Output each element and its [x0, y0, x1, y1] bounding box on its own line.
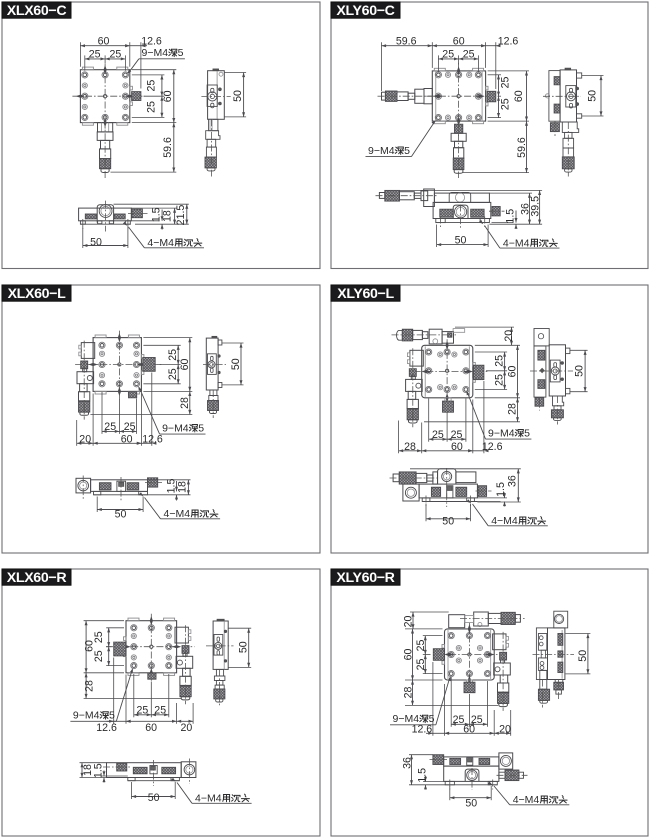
svg-text:50: 50 [148, 792, 160, 804]
svg-text:12.6: 12.6 [412, 724, 433, 736]
svg-text:XLX60−L: XLX60−L [8, 286, 67, 302]
svg-text:59.6: 59.6 [162, 137, 174, 158]
svg-text:25: 25 [167, 349, 179, 361]
svg-text:50: 50 [577, 650, 589, 662]
svg-text:25: 25 [110, 49, 122, 61]
svg-text:50: 50 [232, 90, 244, 102]
svg-text:4−M4: 4−M4 [195, 793, 222, 805]
svg-text:59.6: 59.6 [516, 137, 528, 158]
svg-text:60: 60 [162, 90, 174, 102]
svg-text:1.5: 1.5 [93, 763, 105, 778]
svg-text:60: 60 [513, 90, 525, 102]
svg-text:1.5: 1.5 [495, 482, 507, 497]
svg-text:4−M4: 4−M4 [513, 794, 540, 806]
svg-text:50: 50 [455, 235, 467, 247]
svg-text:25: 25 [145, 101, 157, 113]
svg-text:9−M4: 9−M4 [73, 710, 100, 722]
svg-text:5: 5 [524, 427, 530, 439]
svg-text:21.5: 21.5 [175, 205, 187, 226]
svg-text:25: 25 [451, 429, 463, 441]
svg-text:XLY60−L: XLY60−L [337, 286, 394, 302]
svg-text:20: 20 [403, 616, 415, 628]
svg-text:XLX60−R: XLX60−R [7, 570, 67, 586]
svg-text:5: 5 [178, 47, 184, 59]
svg-text:5: 5 [198, 422, 204, 434]
svg-text:28: 28 [179, 397, 191, 409]
svg-text:25: 25 [104, 421, 116, 433]
svg-text:25: 25 [137, 705, 149, 717]
svg-text:59.6: 59.6 [396, 36, 417, 48]
svg-text:28: 28 [84, 680, 96, 692]
svg-text:50: 50 [574, 365, 586, 377]
svg-text:28: 28 [506, 403, 518, 415]
svg-text:25: 25 [494, 355, 506, 367]
svg-text:25: 25 [415, 640, 427, 652]
svg-text:50: 50 [442, 516, 454, 528]
svg-text:50: 50 [90, 237, 102, 249]
svg-text:25: 25 [167, 368, 179, 380]
svg-text:28: 28 [402, 687, 414, 699]
svg-text:60: 60 [98, 36, 110, 48]
svg-text:25: 25 [442, 49, 454, 61]
svg-text:XLY60−R: XLY60−R [336, 570, 394, 586]
svg-text:9−M4: 9−M4 [393, 713, 420, 725]
svg-text:50: 50 [465, 798, 477, 810]
svg-text:25: 25 [499, 77, 511, 89]
svg-text:25: 25 [124, 421, 136, 433]
svg-text:60: 60 [463, 724, 475, 736]
svg-text:60: 60 [145, 722, 157, 734]
svg-text:50: 50 [237, 641, 249, 653]
svg-text:5: 5 [109, 710, 115, 722]
svg-text:12.6: 12.6 [141, 36, 162, 48]
svg-text:5: 5 [429, 713, 435, 725]
svg-text:9−M4: 9−M4 [162, 422, 189, 434]
svg-text:20: 20 [181, 722, 193, 734]
svg-text:4−M4: 4−M4 [164, 508, 191, 520]
svg-text:1.5: 1.5 [417, 768, 429, 783]
svg-text:9−M4: 9−M4 [488, 427, 515, 439]
svg-text:20: 20 [499, 724, 511, 736]
svg-text:20: 20 [79, 433, 91, 445]
svg-text:25: 25 [154, 705, 166, 717]
svg-text:1.5: 1.5 [504, 209, 516, 224]
svg-text:12.6: 12.6 [96, 722, 117, 734]
svg-text:60: 60 [84, 640, 96, 652]
svg-text:12.6: 12.6 [498, 36, 519, 48]
svg-text:25: 25 [145, 80, 157, 92]
svg-text:25: 25 [499, 98, 511, 110]
svg-text:25: 25 [494, 374, 506, 386]
svg-text:18: 18 [162, 210, 174, 222]
svg-text:50: 50 [587, 90, 599, 102]
svg-text:25: 25 [89, 49, 101, 61]
svg-text:60: 60 [453, 36, 465, 48]
svg-text:50: 50 [115, 509, 127, 521]
svg-text:5: 5 [404, 145, 410, 157]
svg-text:25: 25 [432, 429, 444, 441]
svg-text:25: 25 [415, 659, 427, 671]
svg-text:60: 60 [506, 366, 518, 378]
svg-text:9−M4: 9−M4 [142, 47, 169, 59]
svg-text:28: 28 [404, 441, 416, 453]
svg-text:20: 20 [503, 330, 515, 342]
svg-text:18: 18 [176, 481, 188, 493]
svg-text:9−M4: 9−M4 [368, 145, 395, 157]
svg-text:39.5: 39.5 [530, 196, 542, 217]
svg-text:60: 60 [121, 433, 133, 445]
svg-text:4−M4: 4−M4 [147, 237, 174, 249]
svg-text:4−M4: 4−M4 [503, 237, 530, 249]
svg-text:25: 25 [463, 49, 475, 61]
svg-text:60: 60 [179, 359, 191, 371]
svg-text:50: 50 [230, 358, 242, 370]
svg-text:36: 36 [506, 475, 518, 487]
svg-text:XLY60−C: XLY60−C [336, 3, 394, 19]
svg-text:12.6: 12.6 [482, 441, 503, 453]
svg-text:XLX60−C: XLX60−C [7, 3, 67, 19]
svg-text:12.6: 12.6 [142, 433, 163, 445]
svg-text:36: 36 [401, 757, 413, 769]
svg-text:60: 60 [451, 441, 463, 453]
svg-text:60: 60 [402, 649, 414, 661]
svg-text:4−M4: 4−M4 [491, 515, 518, 527]
